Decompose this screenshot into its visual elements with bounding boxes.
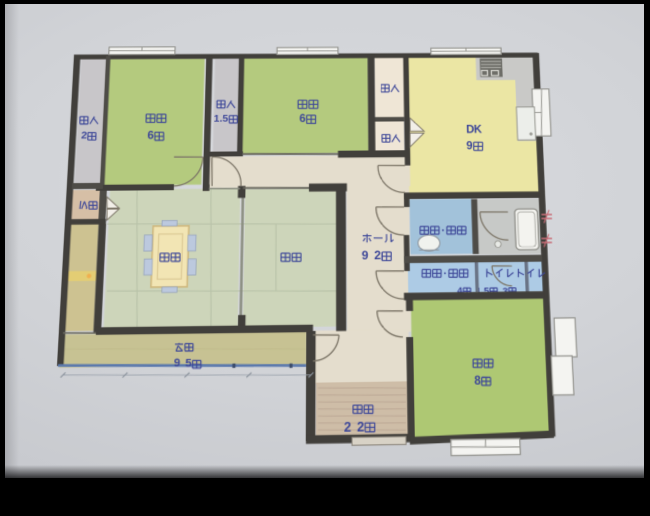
svg-text:2: 2 (81, 130, 88, 141)
svg-text:2: 2 (374, 250, 381, 263)
svg-text:5: 5 (222, 113, 228, 124)
svg-text:6: 6 (299, 113, 305, 125)
svg-text:2: 2 (357, 419, 365, 435)
svg-text:8: 8 (474, 374, 481, 388)
svg-text:5: 5 (185, 358, 192, 370)
svg-text:9: 9 (174, 358, 181, 370)
svg-text:6: 6 (147, 130, 154, 142)
svg-text:K: K (474, 124, 483, 136)
svg-text:9: 9 (362, 250, 369, 263)
svg-text:9: 9 (466, 140, 473, 152)
svg-text:2: 2 (344, 419, 352, 435)
